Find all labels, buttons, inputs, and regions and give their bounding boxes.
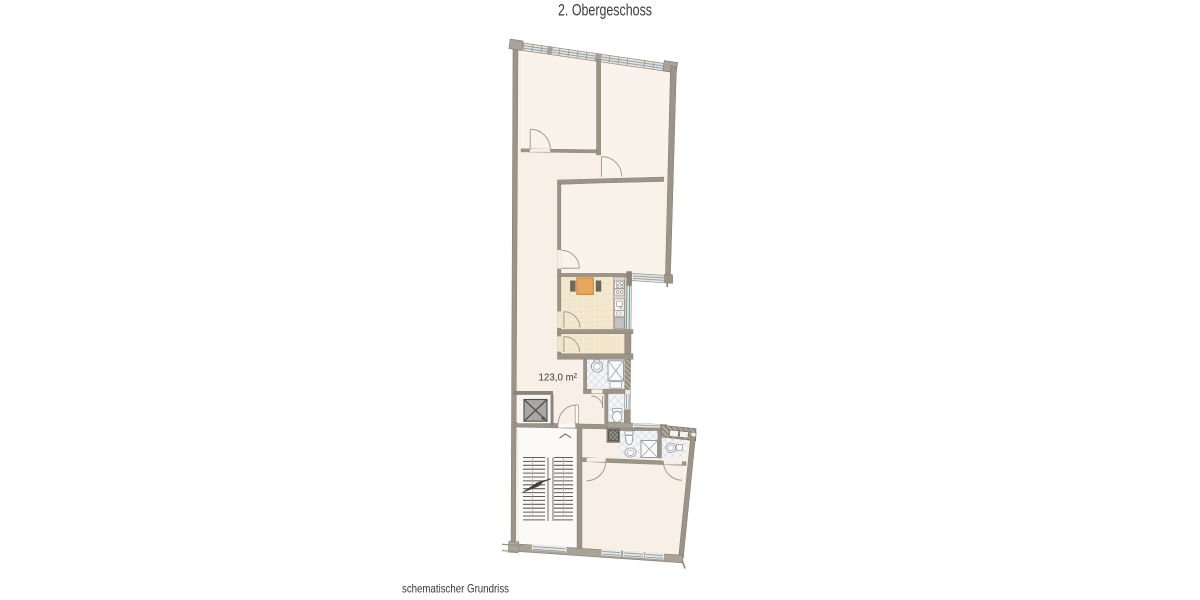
svg-text:schematischer Grundriss: schematischer Grundriss	[402, 582, 509, 596]
svg-text:123,0 m²: 123,0 m²	[539, 373, 578, 384]
svg-text:2. Obergeschoss: 2. Obergeschoss	[558, 2, 652, 20]
